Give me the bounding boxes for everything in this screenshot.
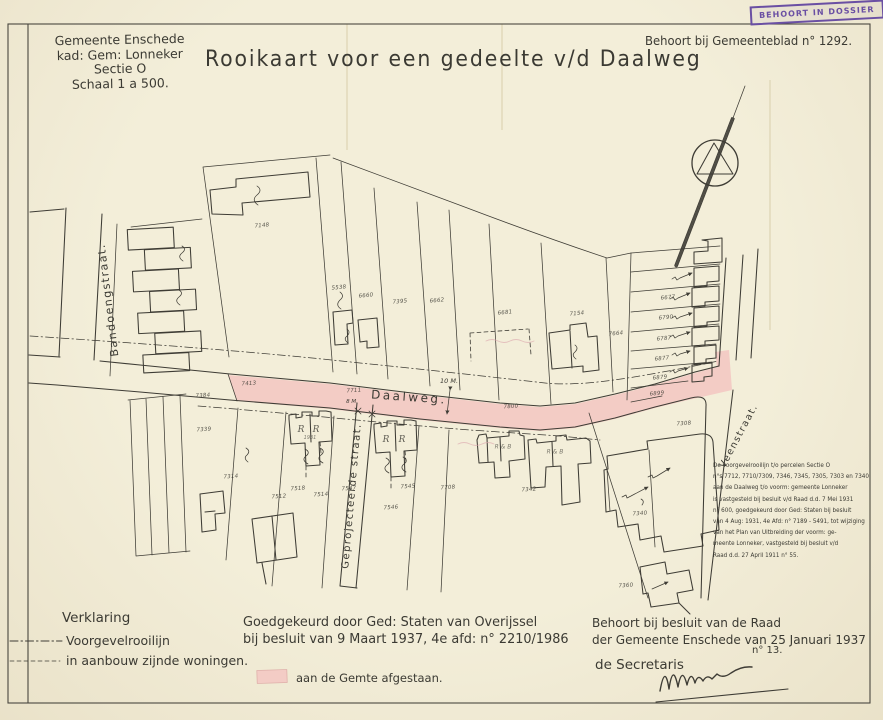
sheet-frame — [8, 24, 870, 703]
parcel-number: 6681 — [497, 309, 512, 316]
approval-line: bij besluit van 9 Maart 1937, 4e afd: n°… — [243, 631, 569, 648]
rooilijn-note-line: meente Lonneker, vastgesteld bij besluit… — [713, 538, 852, 549]
rooilijn-note-line: van 4 Aug: 1931, 4e Afd: n° 7189 - 5491,… — [713, 516, 852, 527]
parcel-number: 7545 — [400, 483, 415, 490]
map-label: R — [298, 425, 305, 435]
parcel-number: 7308 — [676, 420, 691, 427]
parcel-number: 6787 — [656, 335, 671, 342]
corner-note: Gemeente Enschede kad: Gem: Lonneker Sec… — [55, 32, 186, 92]
parcel-number: 7360 — [618, 582, 633, 589]
map-label: R — [313, 425, 320, 435]
rooilijn-note-line: De voorgevelrooilijn t/o percelen Sectie… — [713, 460, 852, 471]
council-line: der Gemeente Enschede van 25 Januari 193… — [592, 632, 866, 649]
corner-note-line: Schaal 1 a 500. — [55, 75, 185, 92]
rooilijn-note: De voorgevelrooilijn t/o percelen Sectie… — [713, 460, 871, 561]
parcel-number: 6790 — [658, 314, 673, 321]
street-width-measure: 8 M. — [346, 399, 358, 405]
legend-title: Verklaring — [62, 610, 130, 626]
sawtooth-houses — [127, 226, 202, 373]
road-width-measure: 10 M. — [440, 377, 458, 385]
parcel-number: 7514 — [313, 491, 328, 498]
rooilijn-note-line: n°s 7712, 7710/7309, 7346, 7345, 7305, 7… — [713, 471, 852, 482]
legend-item-in-aanbouw: in aanbouw zijnde woningen. — [66, 653, 248, 668]
parcel-number: 7148 — [254, 222, 269, 229]
council-number: n° 13. — [752, 645, 782, 656]
rooilijn-note-line: n° 600, goedgekeurd door Ged: Staten bij… — [713, 505, 852, 516]
map-label: R & B — [547, 449, 564, 456]
parcel-number: 5538 — [331, 284, 346, 291]
map-label: R & B — [495, 444, 512, 451]
map-label: R — [383, 435, 390, 445]
ceded-color-swatch — [257, 669, 287, 683]
parcel-number: 7342 — [521, 486, 536, 493]
parcel-number: 7339 — [196, 426, 211, 433]
parcel-number: 6899 — [649, 390, 664, 397]
rooilijn-note-line: aan de Daalweg t/o voorm: gemeente Lonne… — [713, 482, 852, 493]
parcel-number: 7413 — [241, 380, 256, 387]
approval-line: Goedgekeurd door Ged: Staten van Overijs… — [243, 614, 569, 631]
council-note: Behoort bij besluit van de Raad der Geme… — [592, 615, 866, 649]
parcel-number: 7154 — [569, 310, 584, 317]
parcel-number: 7708 — [440, 484, 455, 491]
parcel-number: 6877 — [654, 355, 669, 362]
parcel-number: 7395 — [392, 298, 407, 305]
rooilijn-note-line: Raad d.d. 27 April 1911 n° 55. — [713, 550, 852, 561]
map-drawing — [0, 0, 883, 720]
parcel-number: 7518 — [290, 485, 305, 492]
legend-item-voorgevelrooilijn: Voorgevelrooilijn — [66, 633, 170, 648]
parcel-number: 7340 — [632, 510, 647, 517]
secretaris-label: de Secretaris — [595, 657, 684, 673]
rooikaart-sheet: Bandoengstraat.Daalweg.Geprojecteerde st… — [0, 0, 883, 720]
parcel-number: 6662 — [429, 297, 444, 304]
ceded-label: aan de Gemte afgestaan. — [296, 671, 443, 685]
parcel-number: 7546 — [383, 504, 398, 511]
map-label: 1931 — [304, 435, 317, 441]
map-label: R — [399, 435, 406, 445]
parcel-number: 7384 — [195, 392, 210, 399]
page-title: Rooikaart voor een gedeelte v/d Daalweg — [205, 47, 702, 72]
parcel-number: 7711 — [346, 387, 361, 394]
parcel-number: 6677 — [660, 294, 675, 301]
parcel-number: 6660 — [358, 292, 373, 299]
council-line: Behoort bij besluit van de Raad — [592, 615, 866, 632]
rooilijn-north — [30, 336, 718, 384]
approval-note: Goedgekeurd door Ged: Staten van Overijs… — [243, 614, 569, 648]
parcel-number: 6879 — [652, 374, 667, 381]
parcel-number: 7314 — [223, 473, 238, 480]
gemeenteblad-reference: Behoort bij Gemeenteblad n° 1292. — [645, 33, 852, 48]
parcel-number: 7800 — [503, 403, 518, 410]
rooilijn-note-line: is vastgesteld bij besluit v/d Raad d.d.… — [713, 494, 852, 505]
rooilijn-note-line: van het Plan van Uitbreiding der voorm: … — [713, 527, 852, 538]
parcel-number: 7664 — [608, 330, 623, 337]
parcel-number: 7547 — [341, 485, 356, 492]
parcel-number: 7512 — [271, 493, 286, 500]
